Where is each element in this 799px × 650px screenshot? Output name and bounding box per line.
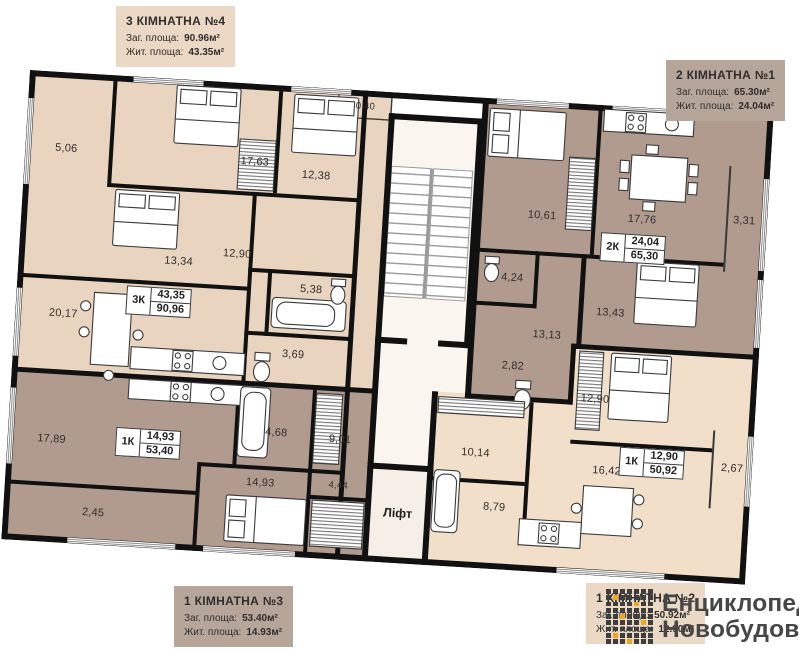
badge-type: 3К [126,286,150,314]
living-area-label: Жит. площа: [126,46,183,60]
apartment-badge-3k: 3К 43,3590,96 [125,285,192,318]
room-area-label: 3,31 [733,214,756,227]
watermark-logo-cell [634,639,639,644]
floor-plan-page: 5,06 17,63 12,38 0,40 13,34 12,90 5,38 2… [0,0,799,650]
room-area-label: 20,17 [49,307,78,321]
floor-plan: 5,06 17,63 12,38 0,40 13,34 12,90 5,38 2… [1,70,773,585]
room-area-label: 12,38 [301,169,330,183]
living-area-value: 24.04м² [738,100,774,114]
room-area-label: 17,76 [627,213,656,227]
total-area-value: 65.30м² [734,86,770,100]
watermark-logo-cell [634,614,639,619]
room-area-label: 14,93 [246,476,275,490]
apartment-badge-1k-right: 1К 12,9050,92 [618,447,685,480]
room-area-label: 4,68 [265,426,288,439]
badge-type: 1К [619,448,643,476]
watermark-logo-cell [648,608,653,613]
watermark-logo-cell [648,595,653,600]
watermark-logo-cell [613,627,618,632]
room-area-label: 5,38 [300,283,323,296]
watermark-logo-cell [641,608,646,613]
watermark-logo-cell [606,602,611,607]
total-area-label: Заг. площа: [184,612,237,626]
watermark-logo-cell [620,614,625,619]
watermark-logo-cell [606,614,611,619]
watermark-logo-cell [613,589,618,594]
watermark-logo-cell [627,639,632,644]
apartment-card-title: 2 КІМНАТНА №1 [676,68,775,82]
room-area-label: 16,42 [592,464,621,478]
watermark-logo-cell [627,633,632,638]
watermark-logo-cell [648,627,653,632]
watermark-logo-cell [634,589,639,594]
watermark-logo-cell [648,639,653,644]
watermark-logo-icon [606,589,653,644]
watermark-logo-cell [606,620,611,625]
total-area-label: Заг. площа: [126,32,179,46]
watermark-logo-cell [613,608,618,613]
room-area-label: 2,45 [82,506,105,519]
apartment-card-1: 2 КІМНАТНА №1 Заг. площа:65.30м² Жит. пл… [666,60,785,121]
watermark-logo-cell [634,633,639,638]
watermark-logo-cell [613,633,618,638]
room-area-label: 2,82 [501,359,524,372]
room-area-label: 12,90 [580,392,609,406]
watermark-logo-cell [641,589,646,594]
total-area-value: 90.96м² [184,32,220,46]
watermark-logo-cell [613,602,618,607]
watermark-logo-cell [620,627,625,632]
room-area-label: 13,43 [596,306,625,320]
room-area-label: 17,63 [240,155,269,169]
watermark-logo-cell [634,608,639,613]
watermark-logo-cell [648,602,653,607]
watermark-logo-cell [641,614,646,619]
room-area-label: 13,34 [164,255,193,269]
watermark-logo-cell [606,595,611,600]
room-area-label: 2,67 [721,462,744,475]
watermark-logo-cell [634,620,639,625]
total-area-value: 53.40м² [242,612,278,626]
watermark-logo-cell [627,620,632,625]
watermark-logo-cell [627,608,632,613]
apartment-badge-1k-left: 1К 14,9353,40 [115,427,182,460]
living-area-label: Жит. площа: [676,100,733,114]
room-area-label: 3,69 [282,348,305,361]
apartment-card-4: 3 КІМНАТНА №4 Заг. площа:90.96м² Жит. пл… [116,6,235,67]
room-area-label: 9,01 [329,433,352,446]
watermark-logo-cell [620,602,625,607]
watermark-logo-cell [613,595,618,600]
room-area-label: 5,06 [55,142,78,155]
living-area-value: 14.93м² [246,626,282,640]
watermark-logo-cell [606,633,611,638]
room-area-label: 10,61 [527,209,556,223]
room-area-label: 17,89 [37,432,66,446]
watermark-logo-cell [620,633,625,638]
watermark-logo-cell [606,639,611,644]
watermark-logo-cell [620,620,625,625]
watermark-logo-cell [606,627,611,632]
room-area-label: 0,40 [355,100,375,112]
watermark-logo-cell [627,589,632,594]
watermark-logo-cell [613,614,618,619]
watermark-logo-cell [634,595,639,600]
watermark-logo-cell [627,614,632,619]
watermark-logo-cell [648,633,653,638]
watermark-logo-cell [627,602,632,607]
room-area-label: 10,14 [461,446,490,460]
watermark-line2: Новобудов [662,617,799,642]
room-area-label: 4,44 [328,480,348,492]
badge-total-area: 50,92 [643,463,683,478]
watermark-logo-cell [641,595,646,600]
watermark-logo-cell [606,608,611,613]
apartment-card-title: 1 КІМНАТНА №3 [184,594,283,608]
watermark-logo-cell [641,627,646,632]
watermark-logo-cell [606,589,611,594]
watermark-logo-cell [641,602,646,607]
watermark-logo-cell [641,620,646,625]
watermark-logo-cell [620,589,625,594]
room-area-label: 4,24 [501,271,524,284]
apartment-badge-2k: 2К 24,0465,30 [599,232,666,265]
badge-total-area: 90,96 [150,302,190,317]
apartment-card-3: 1 КІМНАТНА №3 Заг. площа:53.40м² Жит. пл… [174,586,293,647]
lift-label: Ліфт [383,505,413,521]
watermark-logo-cell [627,627,632,632]
room-area-label: 13,13 [532,328,561,342]
watermark-line1: Енциклопедія [662,591,799,616]
badge-type: 2К [600,233,624,261]
watermark-logo-cell [641,639,646,644]
living-area-label: Жит. площа: [184,626,241,640]
watermark: Енциклопедія Новобудов [606,589,799,644]
watermark-logo-cell [641,633,646,638]
living-area-value: 43.35м² [188,46,224,60]
room-area-label: 8,79 [483,500,506,513]
apartment-card-title: 3 КІМНАТНА №4 [126,14,225,28]
badge-total-area: 53,40 [139,443,179,458]
watermark-logo-cell [648,614,653,619]
watermark-text: Енциклопедія Новобудов [662,591,799,642]
watermark-logo-cell [634,602,639,607]
badge-type: 1К [116,428,140,456]
watermark-logo-cell [648,589,653,594]
watermark-logo-cell [634,627,639,632]
watermark-logo-cell [648,620,653,625]
watermark-logo-cell [620,608,625,613]
total-area-label: Заг. площа: [676,86,729,100]
staircase [384,166,473,301]
badge-total-area: 65,30 [624,249,664,264]
watermark-logo-cell [627,595,632,600]
watermark-logo-cell [613,639,618,644]
watermark-logo-cell [620,595,625,600]
watermark-logo-cell [613,620,618,625]
room-area-label: 12,90 [223,247,252,261]
watermark-logo-cell [620,639,625,644]
